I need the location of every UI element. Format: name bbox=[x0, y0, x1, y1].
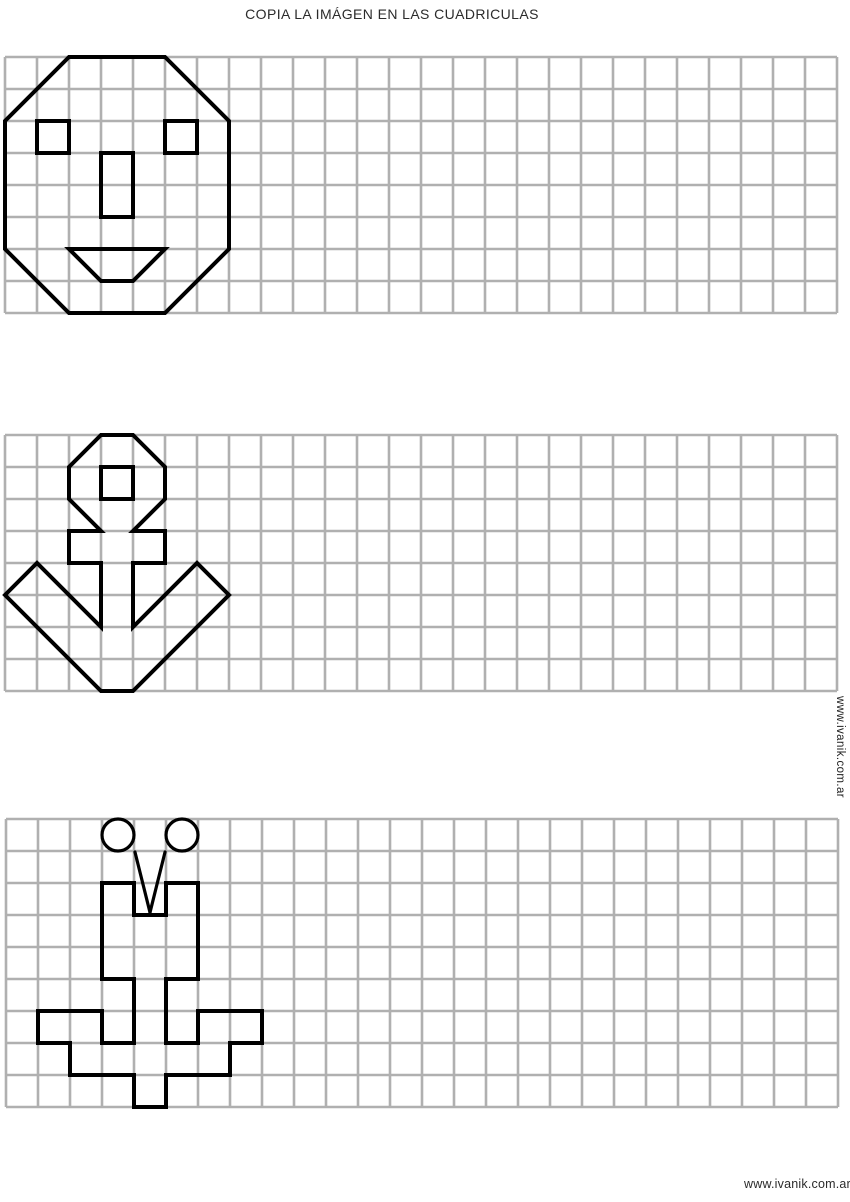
watermark-bottom: www.ivanik.com.ar bbox=[744, 1177, 850, 1191]
bug-right-antenna-ball bbox=[166, 819, 198, 851]
face-left-eye bbox=[37, 121, 69, 153]
panel-anchor bbox=[5, 435, 837, 691]
worksheet-page: COPIA LA IMÁGEN EN LAS CUADRICULAS www.i… bbox=[0, 0, 850, 1202]
bug-body-outline bbox=[38, 883, 262, 1107]
face-mouth bbox=[69, 249, 165, 281]
panel-face bbox=[5, 57, 837, 313]
anchor-grid-lines bbox=[5, 435, 837, 691]
face-grid-lines bbox=[5, 57, 837, 313]
bug-left-antenna-ball bbox=[102, 819, 134, 851]
watermark-side: www.ivanik.com.ar bbox=[834, 696, 846, 798]
bug-grid-lines bbox=[6, 819, 838, 1107]
panel-bug bbox=[6, 819, 838, 1107]
page-title: COPIA LA IMÁGEN EN LAS CUADRICULAS bbox=[245, 6, 539, 22]
anchor-ring-hole bbox=[101, 467, 133, 499]
face-right-eye bbox=[165, 121, 197, 153]
